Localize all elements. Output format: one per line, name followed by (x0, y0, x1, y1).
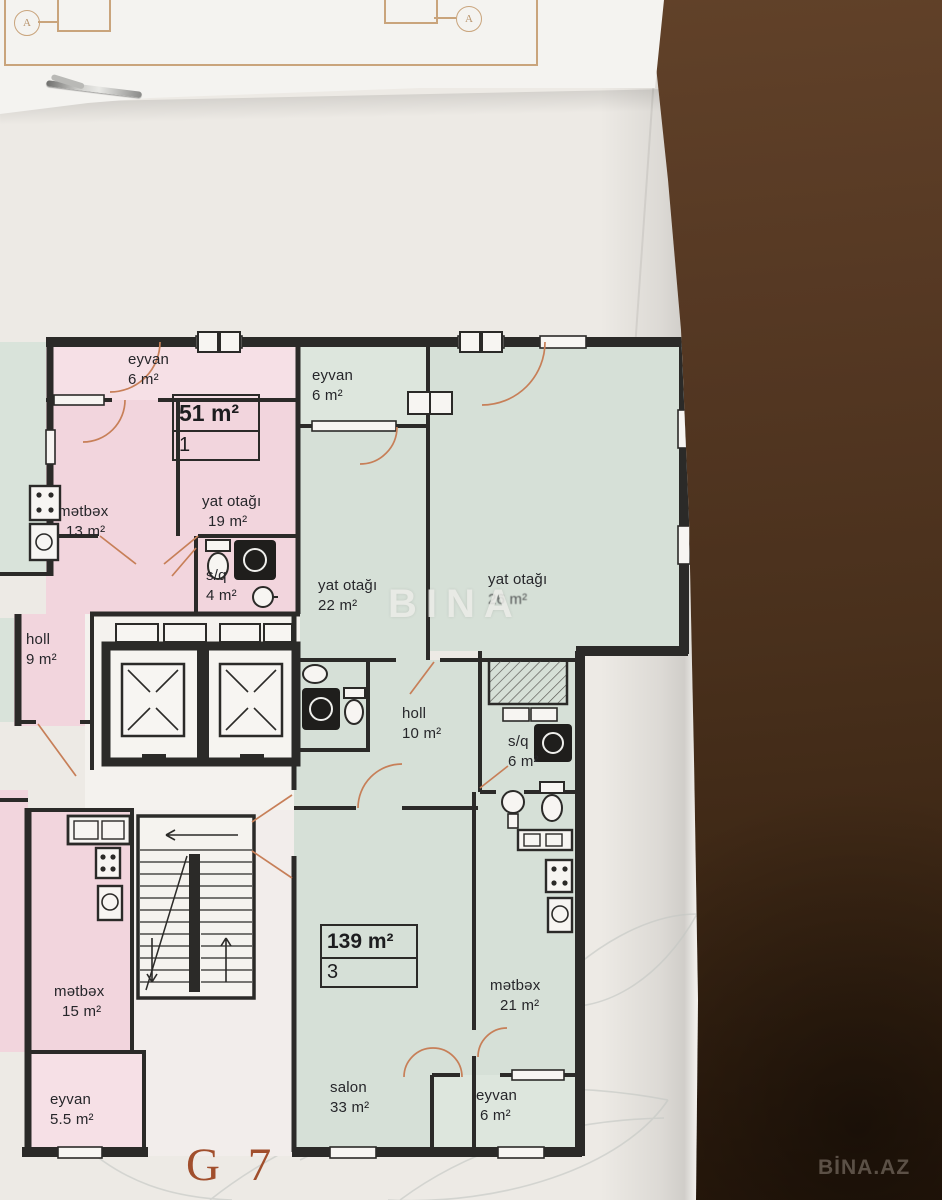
room-area: 22 m² (318, 596, 377, 616)
elevation-marker-circle: A (14, 10, 40, 36)
bina-az-watermark: BİNA.AZ (818, 1156, 910, 1180)
room-label: mətbəx 13 m² (58, 502, 108, 541)
room-name: eyvan (50, 1090, 94, 1110)
room-name: eyvan (128, 350, 169, 370)
room-label: s/q 6 m² (508, 732, 539, 771)
column-outline (384, 0, 438, 24)
unit-room-count: 1 (174, 432, 258, 459)
room-name: eyvan (476, 1086, 517, 1106)
room-name: salon (330, 1078, 369, 1098)
room-area: 9 m² (26, 650, 57, 670)
room-name: eyvan (312, 366, 353, 386)
room-label: eyvan 5.5 m² (50, 1090, 94, 1129)
room-area: 6 m² (312, 386, 353, 406)
room-label: holl 10 m² (402, 704, 441, 743)
room-name: mətbəx (54, 982, 104, 1002)
room-name: holl (26, 630, 57, 650)
room-area: 5.5 m² (50, 1110, 94, 1130)
room-area: 13 m² (58, 522, 108, 542)
room-label: yat otağı 19 m² (202, 492, 261, 531)
unit-area: 139 m² (322, 926, 416, 959)
room-area: 21 m² (490, 996, 540, 1016)
marker-leader-line (38, 21, 57, 23)
room-name: mətbəx (58, 502, 108, 522)
room-area: 6 m² (476, 1106, 517, 1126)
unit-51-label-box: 51 m² 1 (172, 394, 260, 461)
unit-room-count: 3 (322, 959, 416, 986)
room-area: 6 m² (508, 752, 539, 772)
unit-139-label-box: 139 m² 3 (320, 924, 418, 988)
room-name: yat otağı (318, 576, 377, 596)
room-name: s/q (508, 732, 539, 752)
room-area: 15 m² (54, 1002, 104, 1022)
room-name: yat otağı (202, 492, 261, 512)
room-label: mətbəx 15 m² (54, 982, 104, 1021)
elevation-marker-label: A (465, 13, 473, 25)
room-label: s/q 4 m² (206, 566, 237, 605)
bina-plan-watermark: BINA (388, 582, 522, 627)
room-area: 10 m² (402, 724, 441, 744)
room-name: holl (402, 704, 441, 724)
room-label: mətbəx 21 m² (490, 976, 540, 1015)
room-name: s/q (206, 566, 237, 586)
elevation-marker-label: A (23, 17, 31, 29)
room-label: holl 9 m² (26, 630, 57, 669)
room-label: salon 33 m² (330, 1078, 369, 1117)
marker-leader-line (434, 17, 456, 19)
unit-area: 51 m² (174, 396, 258, 432)
room-label: eyvan 6 m² (476, 1086, 517, 1125)
room-label: yat otağı 22 m² (318, 576, 377, 615)
room-label: eyvan 6 m² (312, 366, 353, 405)
room-area: 19 m² (202, 512, 261, 532)
floor-plan-sheet: eyvan 6 m² eyvan 6 m² 51 m² 1 mətbəx 13 … (0, 0, 700, 1200)
room-label: eyvan 6 m² (128, 350, 169, 389)
floor-plan-drawing: eyvan 6 m² eyvan 6 m² 51 m² 1 mətbəx 13 … (0, 330, 700, 1200)
elevation-marker-circle: A (456, 6, 482, 32)
photo-of-floor-plan: eyvan 6 m² eyvan 6 m² 51 m² 1 mətbəx 13 … (0, 0, 942, 1200)
column-outline (57, 0, 111, 32)
room-area: 33 m² (330, 1098, 369, 1118)
room-area: 4 m² (206, 586, 237, 606)
room-name: mətbəx (490, 976, 540, 996)
sheet-code: G 7 (186, 1138, 279, 1192)
room-area: 6 m² (128, 370, 169, 390)
plan-linework (0, 330, 700, 1200)
